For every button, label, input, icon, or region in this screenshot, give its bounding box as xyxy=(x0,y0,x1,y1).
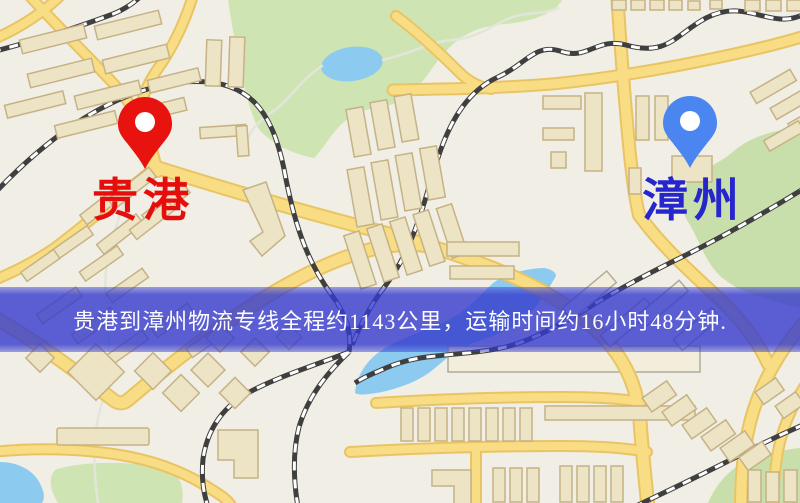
logistics-route-map: 贵港 漳州 贵港到漳州物流专线全程约1143公里，运输时间约16小时48分钟. xyxy=(0,0,800,503)
destination-label: 漳州 xyxy=(642,175,744,226)
map-canvas: 贵港 漳州 xyxy=(0,0,800,503)
origin-pin-icon xyxy=(118,97,172,169)
origin-pin[interactable] xyxy=(118,97,172,169)
route-info-text: 贵港到漳州物流专线全程约1143公里，运输时间约16小时48分钟. xyxy=(73,304,727,336)
origin-label: 贵港 xyxy=(92,175,194,226)
route-info-banner: 贵港到漳州物流专线全程约1143公里，运输时间约16小时48分钟. xyxy=(0,287,800,352)
